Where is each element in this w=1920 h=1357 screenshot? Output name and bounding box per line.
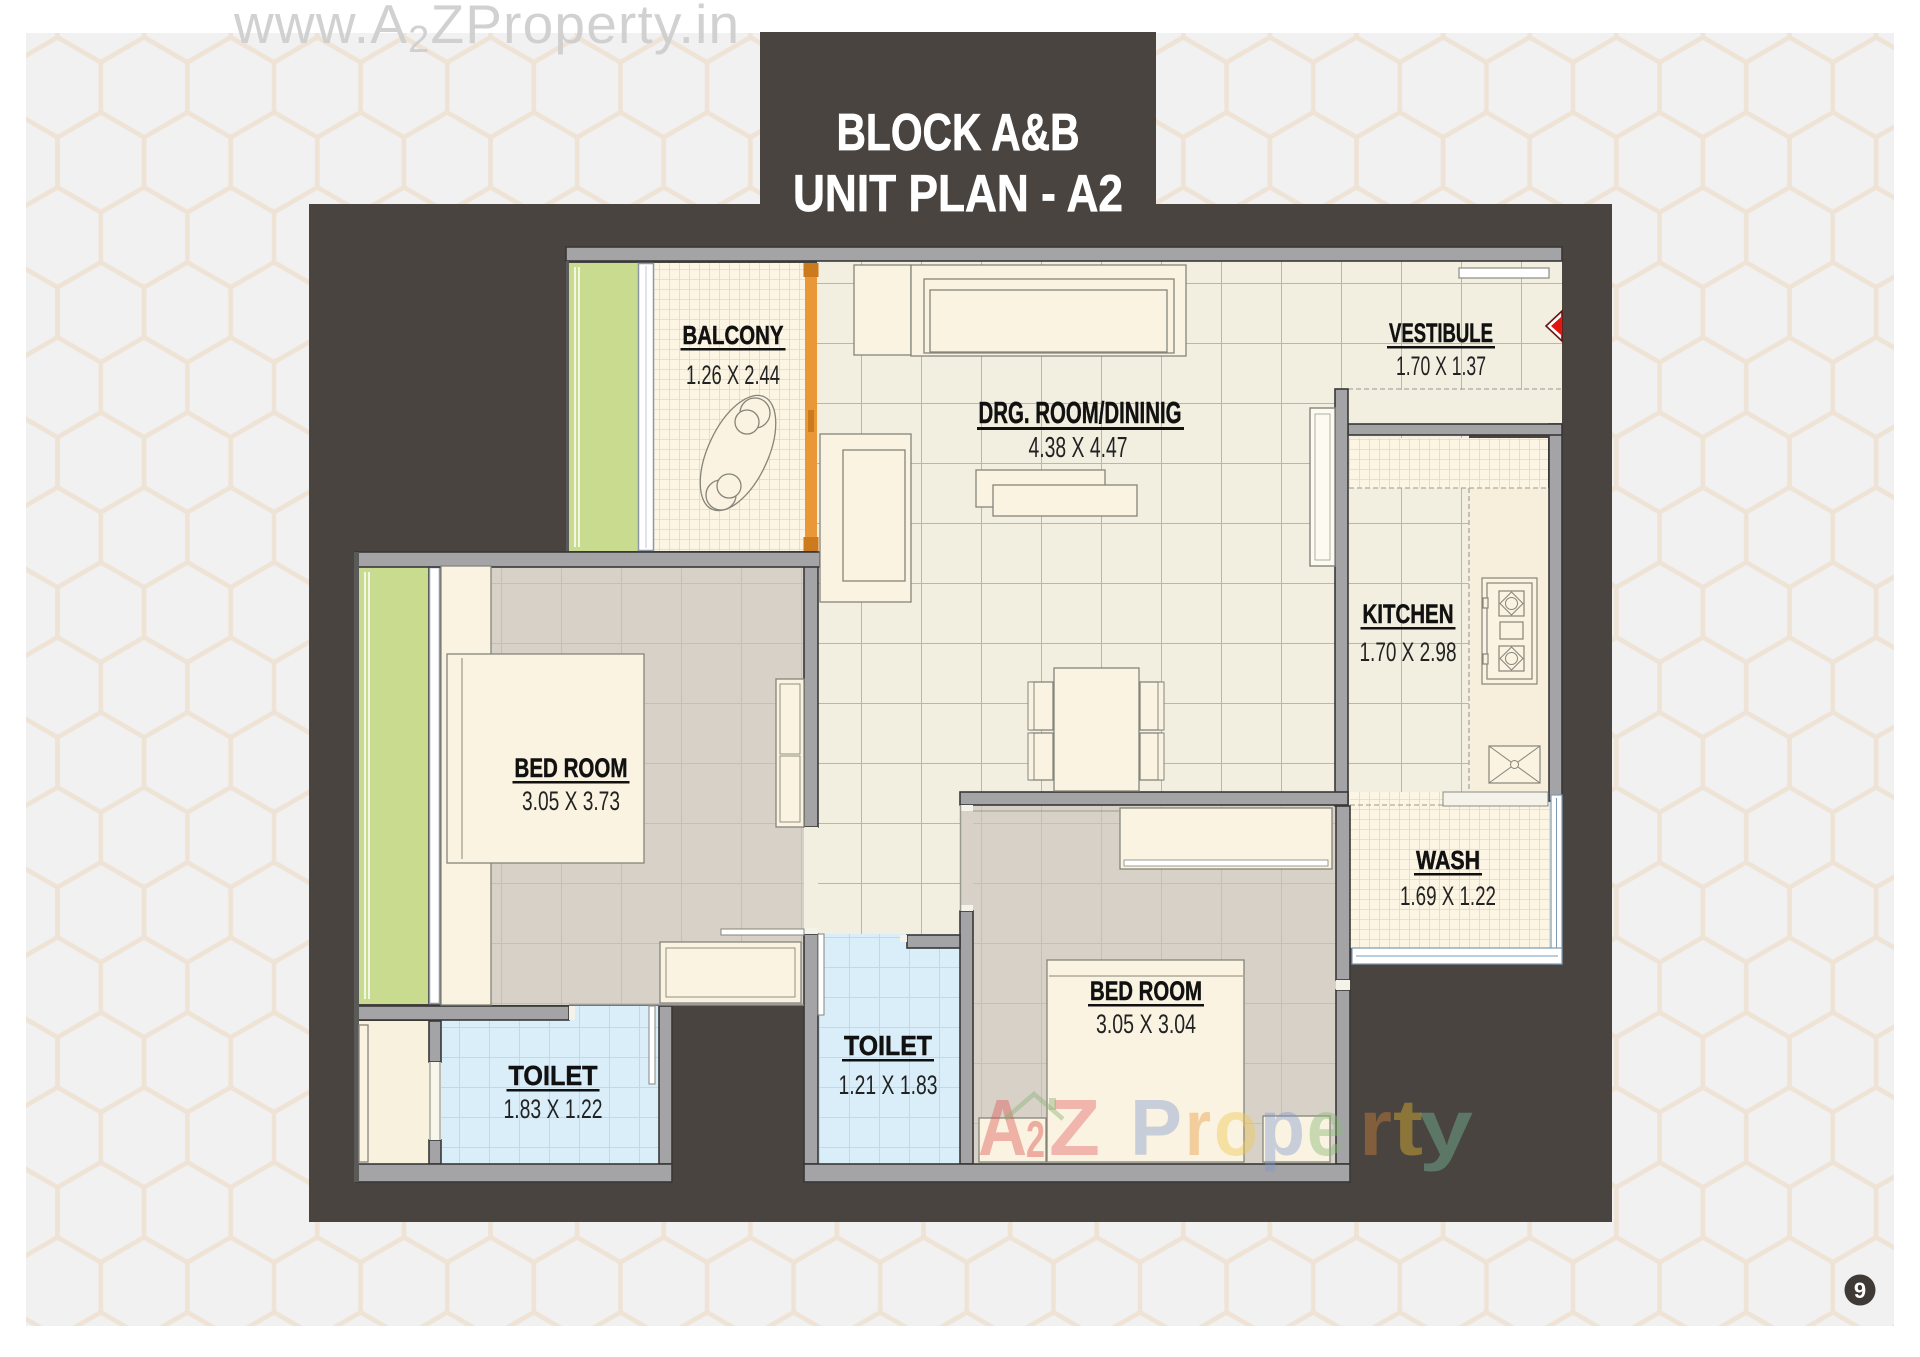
svg-text:UNIT PLAN - A2: UNIT PLAN - A2	[793, 165, 1123, 223]
svg-text:BLOCK A&B: BLOCK A&B	[837, 104, 1080, 162]
svg-text:2: 2	[1026, 1111, 1045, 1169]
svg-text:P: P	[1130, 1083, 1182, 1172]
svg-text:TOILET: TOILET	[844, 1030, 932, 1061]
svg-text:KITCHEN: KITCHEN	[1363, 599, 1454, 629]
svg-text:Z: Z	[1049, 1083, 1100, 1172]
svg-text:r: r	[1359, 1083, 1392, 1172]
svg-text:1.21 X 1.83: 1.21 X 1.83	[839, 1070, 938, 1100]
svg-text:TOILET: TOILET	[509, 1060, 598, 1091]
svg-text:9: 9	[1854, 1278, 1866, 1303]
svg-text:1.70 X 2.98: 1.70 X 2.98	[1360, 637, 1457, 667]
svg-text:BED ROOM: BED ROOM	[1090, 976, 1202, 1006]
svg-text:4.38 X 4.47: 4.38 X 4.47	[1029, 432, 1128, 464]
svg-text:3.05 X 3.73: 3.05 X 3.73	[522, 786, 620, 816]
svg-text:e: e	[1307, 1083, 1345, 1172]
svg-text:1.69 X 1.22: 1.69 X 1.22	[1400, 881, 1496, 911]
svg-text:BALCONY: BALCONY	[683, 320, 784, 350]
svg-text:o: o	[1214, 1083, 1258, 1172]
svg-text:1.26 X 2.44: 1.26 X 2.44	[686, 360, 780, 390]
svg-text:BED ROOM: BED ROOM	[515, 753, 628, 783]
svg-text:www.A2ZProperty.in: www.A2ZProperty.in	[233, 0, 740, 61]
svg-text:A: A	[978, 1083, 1027, 1172]
svg-text:1.70 X 1.37: 1.70 X 1.37	[1396, 351, 1486, 381]
svg-text:DRG. ROOM/DININIG: DRG. ROOM/DININIG	[979, 395, 1182, 430]
svg-text:3.05 X 3.04: 3.05 X 3.04	[1096, 1009, 1196, 1039]
svg-text:p: p	[1260, 1083, 1305, 1172]
svg-text:VESTIBULE: VESTIBULE	[1389, 318, 1493, 348]
svg-text:1.83 X 1.22: 1.83 X 1.22	[504, 1094, 603, 1124]
svg-text:WASH: WASH	[1416, 845, 1480, 875]
svg-text:y: y	[1419, 1083, 1474, 1172]
svg-text:r: r	[1185, 1083, 1211, 1172]
